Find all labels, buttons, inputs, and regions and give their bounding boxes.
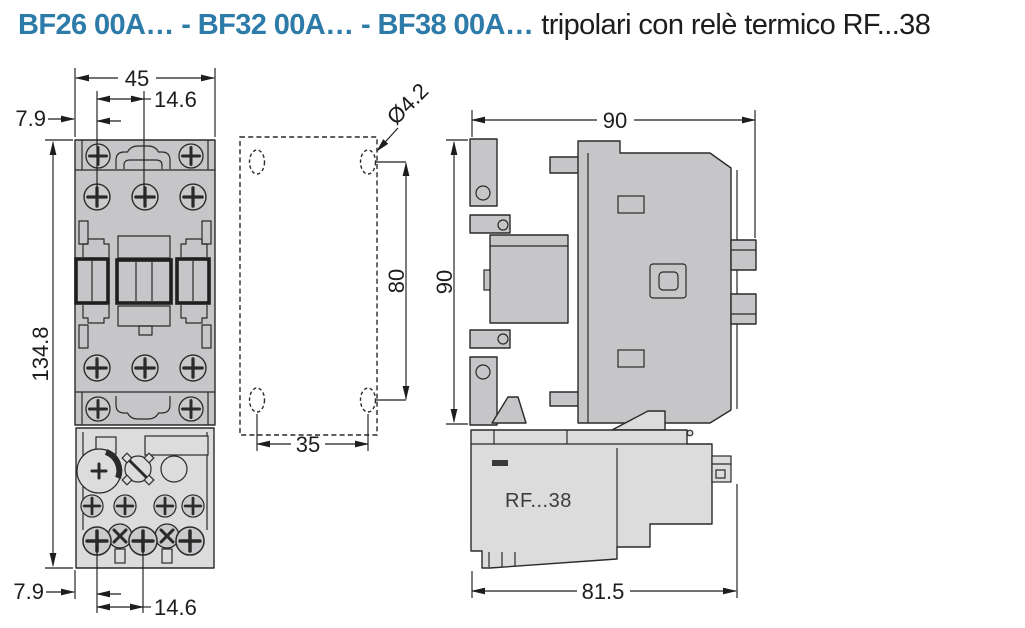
screw-icon <box>114 495 136 517</box>
screw-icon <box>86 397 110 421</box>
front-view: 45 14.6 7.9 134.8 7.9 <box>13 66 215 620</box>
screw-icon <box>132 355 158 381</box>
din-rail-clip <box>731 240 756 324</box>
screw-icon <box>81 495 103 517</box>
screw-icon <box>86 144 110 168</box>
side-view: RF...38 90 90 81.5 <box>432 108 756 604</box>
dim-side-width: 90 <box>603 108 627 133</box>
dim-hole-diameter: Ø4.2 <box>382 78 433 129</box>
dim-vertical-spacing: 80 <box>384 269 409 293</box>
screw-icon <box>182 495 204 517</box>
relay-side-knob <box>712 456 731 482</box>
mounting-hole <box>361 388 376 412</box>
mounting-hole <box>250 388 265 412</box>
screw-icon <box>132 184 158 210</box>
screw-icon <box>180 355 206 381</box>
adjustment-dial <box>77 449 121 493</box>
dim-hole-spacing-bottom: 14.6 <box>154 595 197 620</box>
screw-icon <box>180 184 206 210</box>
screw-icon <box>179 144 203 168</box>
dim-total-height: 134.8 <box>28 326 53 381</box>
drilling-template: Ø4.2 80 35 <box>240 78 433 457</box>
thermal-relay-side: RF...38 <box>471 411 731 568</box>
mounting-hole <box>361 150 376 174</box>
relay-marking <box>492 460 508 466</box>
template-dimensions: Ø4.2 80 35 <box>257 78 433 457</box>
technical-drawing: 45 14.6 7.9 134.8 7.9 <box>0 0 1025 628</box>
screw-icon <box>179 397 203 421</box>
dim-edge-offset-top: 7.9 <box>15 106 46 131</box>
screw-icon <box>84 355 110 381</box>
dim-horizontal-spacing: 35 <box>296 432 320 457</box>
mounting-hole <box>250 150 265 174</box>
relay-label: RF...38 <box>505 490 572 512</box>
screw-icon <box>154 495 176 517</box>
dim-hole-spacing-top: 14.6 <box>154 87 197 112</box>
dim-side-height: 90 <box>432 270 457 294</box>
dim-front-width: 45 <box>125 66 149 91</box>
contactor-side-body <box>470 139 756 425</box>
contactor-front-body <box>75 140 215 425</box>
dim-edge-offset-bottom: 7.9 <box>13 579 44 604</box>
reset-button <box>161 456 187 482</box>
dim-relay-depth: 81.5 <box>582 579 625 604</box>
test-button <box>122 453 154 485</box>
page: BF26 00A… - BF32 00A… - BF38 00A…tripola… <box>0 0 1025 628</box>
